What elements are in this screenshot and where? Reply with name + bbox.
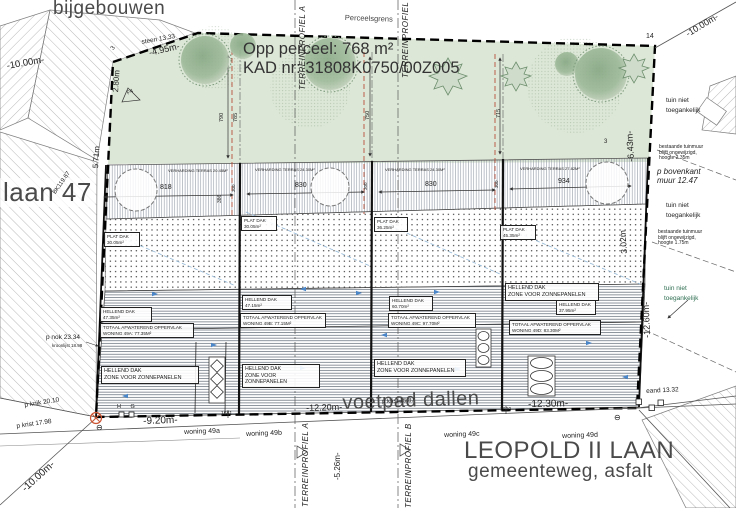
house-b-totaal-box: TOTAAL AFWATEREND OPPERVLAK WONING 49B: … [240,313,326,328]
label-woning-49d: woning 49d [562,432,598,441]
note-kroonlijst: kroonlijst 18.98 [52,343,82,348]
terrace-depth-300a: 300 [231,184,236,192]
label-woning-49b: woning 49b [246,430,282,439]
note-bovenkant: p bovenkant muur 12.47 [657,168,701,186]
house-c-hellend-box: HELLEND DAK 60.70m² [389,296,433,311]
house-c-totaal-box: TOTAAL AFWATEREND OPPERVLAK WONING 49C: … [388,313,476,328]
corner-3-right: 3 [604,139,607,146]
note-pnok: p nok 23.34 [46,334,80,341]
terrace-depth-300b: 300 [363,182,368,190]
dim-1220: -12.20m- [306,402,342,413]
note-muur-175: bestaande tuinmuur blijft ongewijzigd, h… [658,230,702,247]
section-arrows [297,444,410,458]
note-pkrist-1587: p krist 15.87 [382,398,415,406]
symbol-circle-minus-left: ⊖ [96,424,103,433]
dim-1260: -12.60m- [641,302,652,338]
house-a-platdak-box: PLAT DAK 30.05m² [104,232,140,247]
label-woning-49c: woning 49c [444,431,480,440]
house-b-zone-box: HELLEND DAK ZONE VOOR ZONNEPANELEN [242,364,320,388]
perceelsgrens-label: Perceelsgrens [345,14,393,24]
section-b-bottom: TERREINPROFIEL B [405,423,414,508]
dim-1230: -12.30m- [528,398,568,410]
garden-dim-785: 785 [233,113,239,122]
dim-643: -6.43m- [624,130,636,162]
parcel-area-label: Opp perceel: 768 m² [243,40,393,58]
tick-1690: 1690 [500,408,511,414]
tick-1681: 1681 [221,412,232,418]
corner-14: 14 [646,33,654,41]
label-woning-49a: woning 49a [184,428,220,437]
note-tuin-2: tuin niet toegankelijk [666,201,700,222]
dim-526: -5.26m- [334,452,343,480]
note-hg: H G [117,404,139,410]
garden-dim-715: 715 [496,109,502,118]
label-bijgebouwen: bijgebouwen [53,0,165,19]
terrace-width-2: 830 [295,182,307,190]
terrace-note-1: VERHARDING TERRAS 20.45M² [168,169,228,173]
note-muur-235: bestaande tuinmuur blijft ongewijzigd, h… [659,145,703,162]
house-b-platdak-box: PLAT DAK 30.05m² [241,216,277,231]
house-a-hellend-box: HELLEND DAK 47.35m² [100,307,152,322]
house-d-hellend-box: HELLEND DAK 37.95m² [556,300,596,315]
terrace-depth-386: 386 [218,195,224,203]
terrace-depth-300c: 300 [494,180,499,188]
terrace-note-3: VERHARDING TERRAS 24.30M² [385,168,445,172]
garden-dim-750: 750 [365,111,371,120]
house-c-platdak-box: PLAT DAK 36.25m² [374,217,408,232]
terrace-width-1: 818 [160,184,172,192]
section-b-top: TERREINPROFIEL B [402,0,411,78]
house-a-zone-box: HELLEND DAK ZONE VOOR ZONNEPANELEN [101,366,199,384]
terrace-note-2: VERHARDING TERRAS 24.30M² [255,168,315,172]
dim-302: 3.02m [618,230,629,254]
symbol-circle-minus-right: ⊖ [614,414,621,423]
house-c-zone-box: HELLEND DAK ZONE VOOR ZONNEPANELEN [374,359,466,377]
site-plan-sheet: bijgebouwen laan 47 voetpad dallen LEOPO… [0,0,736,508]
house-d-platdak-box: PLAT DAK 45.35m² [500,225,536,240]
section-a-bottom: TERREINPROFIEL A [302,423,311,507]
section-a-top: TERREINPROFIEL A [299,6,308,90]
terrace-note-4: VERHARDING TERRAS 27.82M² [520,167,580,171]
garden-dim-790: 790 [219,113,225,122]
label-gemeenteweg: gemeenteweg, asfalt [468,461,653,482]
dim-280: 2.80m [112,70,122,93]
note-tuin-3: tuin niet toegankelijk [664,284,698,305]
house-b-hellend-box: HELLEND DAK 47.15m² [242,295,292,310]
house-d-zone-box: HELLEND DAK ZONE VOOR ZONNEPANELEN [505,283,599,301]
house-d-totaal-box: TOTAAL AFWATEREND OPPERVLAK WONING 49D: … [509,320,601,335]
house-a-totaal-box: TOTAAL AFWATEREND OPPERVLAK WONING 49A: … [100,323,194,338]
note-tuin-1: tuin niet toegankelijk [666,96,700,117]
dim-571: 5.71m [92,146,102,169]
label-laan-47: laan 47 [0,178,95,207]
dim-920: -9.20m- [143,415,178,427]
terrace-width-3: 830 [425,181,437,189]
kad-number-label: KAD nr: 31808K0750/00Z005 [243,59,460,77]
terrace-width-4: 934 [558,178,570,186]
